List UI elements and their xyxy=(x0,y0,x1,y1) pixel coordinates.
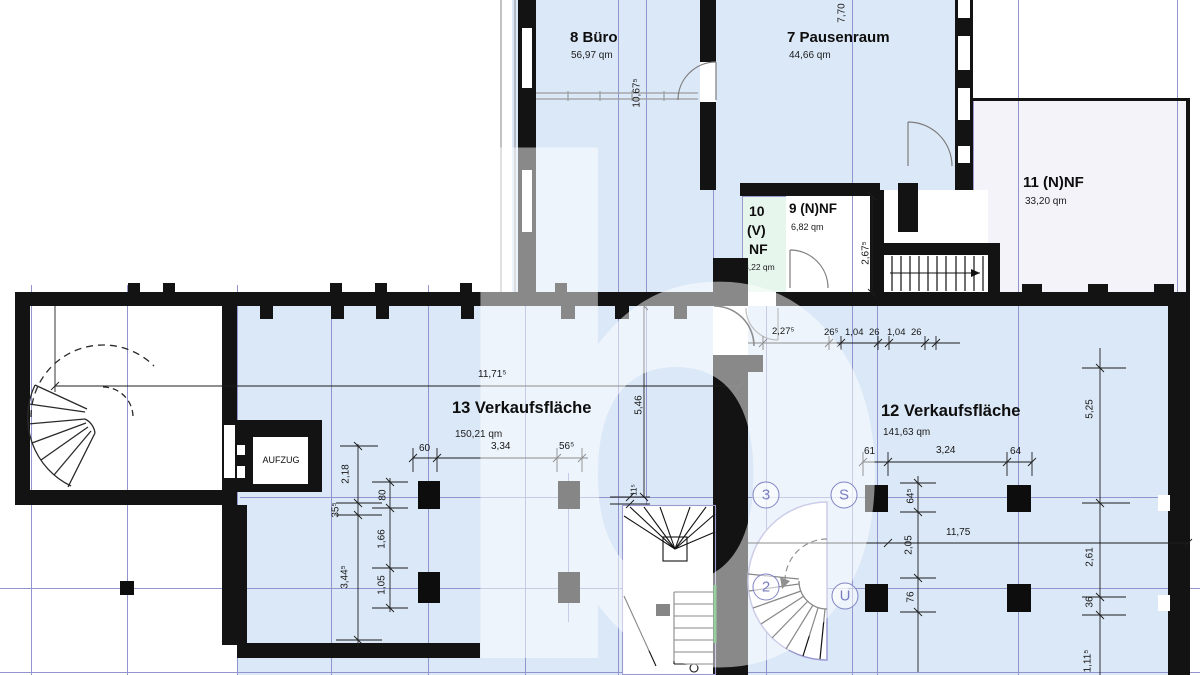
room-10-label-3: NF xyxy=(749,241,768,257)
dim-11-5: 11⁵ xyxy=(630,484,639,496)
room-11-area-label: 33,20 qm xyxy=(1025,196,1067,207)
dim-1-05: 1,05 xyxy=(377,575,388,594)
room-10-label-1: 10 xyxy=(749,203,765,219)
room-9-label: 9 (N)NF xyxy=(789,201,837,216)
facade-frame xyxy=(501,0,515,292)
dimension-lines xyxy=(51,192,1192,675)
window-sill xyxy=(536,91,698,101)
room-7-label: 7 Pausenraum xyxy=(787,29,890,46)
dim-1-11: 1,11⁵ xyxy=(1083,650,1094,673)
plan-linework xyxy=(0,0,1200,675)
dim-2-61: 2,61 xyxy=(1085,547,1096,566)
dim-2-67: 2,67⁵ xyxy=(861,241,872,265)
floor-plan: b 8 Büro 56,97 qm 7 Pausenraum 44,66 qm … xyxy=(0,0,1200,675)
dim-56-5: 56⁵ xyxy=(559,441,574,452)
dim-2-05: 2,05 xyxy=(904,535,915,554)
room-12-area-label: 141,63 qm xyxy=(883,427,930,438)
dim-3-24: 3,24 xyxy=(936,445,955,456)
dim-26-b: 26 xyxy=(911,327,922,338)
dim-1-66: 1,66 xyxy=(377,529,388,548)
dim-76: 76 xyxy=(906,591,917,602)
dim-64: 64 xyxy=(1010,446,1021,457)
dim-35-5: 35⁵ xyxy=(331,502,342,517)
grid-marker-3: 3 xyxy=(753,482,780,509)
dim-1-04-a: 1,04 xyxy=(845,327,864,338)
dim-3-34: 3,34 xyxy=(491,441,510,452)
room-13-label: 13 Verkaufsfläche xyxy=(452,399,591,418)
dim-5-25: 5,25 xyxy=(1085,399,1096,418)
grid-marker-s: S xyxy=(831,482,858,509)
room-7-area-label: 44,66 qm xyxy=(789,50,831,61)
room-11-label: 11 (N)NF xyxy=(1023,174,1084,191)
straight-stair xyxy=(890,256,983,291)
room-8-label: 8 Büro xyxy=(570,29,618,46)
dim-5-46: 5,46 xyxy=(634,395,645,414)
dim-7-70: 7,70 xyxy=(837,3,848,22)
dim-26-a: 26 xyxy=(869,327,880,338)
dim-10-67: 10,67⁵ xyxy=(632,78,643,107)
dim-60: 60 xyxy=(419,443,430,454)
dim-11-75: 11,75 xyxy=(946,527,970,538)
grid-marker-2: 2 xyxy=(753,574,780,601)
annex-spiral-stair xyxy=(28,345,154,487)
room-10-area-label: 3,22 qm xyxy=(744,262,775,272)
dim-64-5: 64⁵ xyxy=(906,488,917,503)
dim-36: 36 xyxy=(1085,596,1096,607)
room-10-label-2: (V) xyxy=(747,222,766,238)
dim-80: 80 xyxy=(378,489,389,500)
grid-marker-u: U xyxy=(832,583,859,610)
winder-stair xyxy=(623,506,716,675)
room-8-area-label: 56,97 qm xyxy=(571,50,613,61)
dim-61: 61 xyxy=(864,446,875,457)
dim-2-18: 2,18 xyxy=(341,464,352,483)
dim-26-5: 26⁵ xyxy=(824,327,839,338)
room-13-area-label: 150,21 qm xyxy=(455,429,502,440)
dim-3-44: 3,44⁵ xyxy=(340,565,351,589)
dim-11-71: 11,71⁵ xyxy=(478,369,506,380)
room-9-area-label: 6,82 qm xyxy=(791,222,824,232)
dim-1-04-b: 1,04 xyxy=(887,327,906,338)
elevator-label: AUFZUG xyxy=(256,455,306,465)
room-12-label: 12 Verkaufsfläche xyxy=(881,402,1020,421)
dim-2-27: 2,27⁵ xyxy=(772,326,794,337)
